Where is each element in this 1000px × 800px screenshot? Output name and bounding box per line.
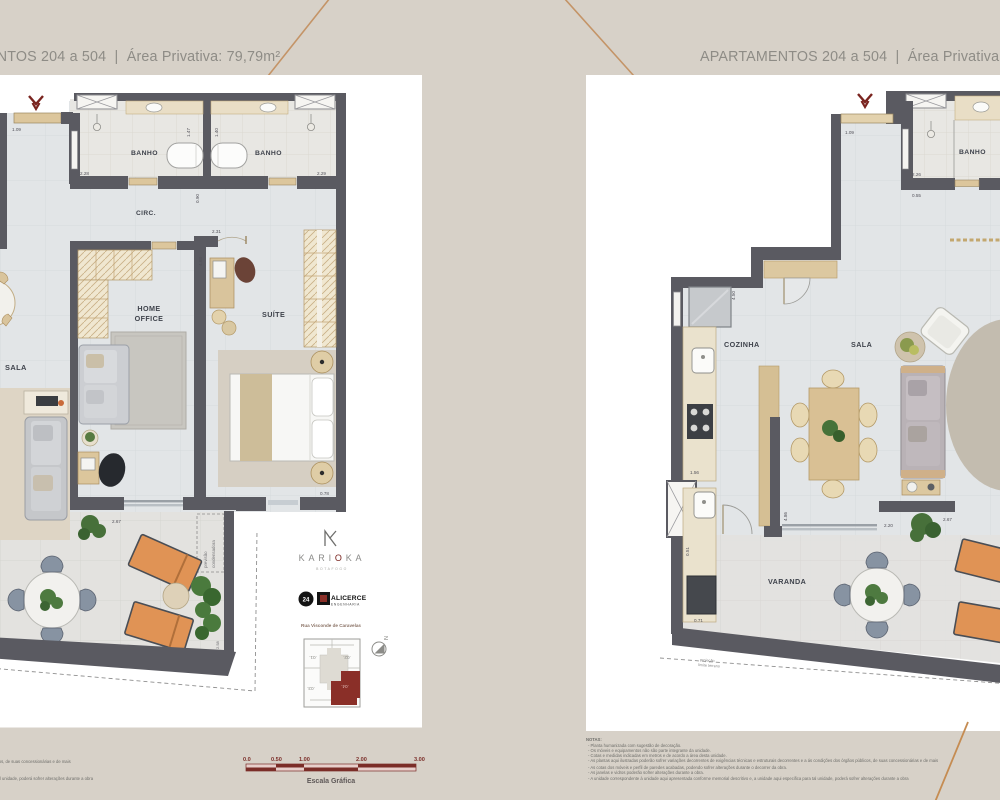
svg-text:2.67: 2.67 (112, 519, 121, 524)
svg-text:CIRC.: CIRC. (136, 210, 156, 217)
svg-text:previsão: previsão (203, 551, 208, 568)
svg-text:condensadora: condensadora (211, 540, 216, 568)
svg-text:N: N (382, 636, 388, 640)
svg-text:4.68: 4.68 (198, 257, 203, 266)
svg-text:aqui especifica para tal unida: aqui especifica para tal unidade, poderá… (0, 776, 94, 781)
svg-text:BANHO: BANHO (959, 149, 986, 156)
svg-text:.03.: .03. (307, 685, 315, 691)
svg-text:SALA: SALA (5, 363, 27, 372)
svg-text:- As janelas e vidros poderão: - As janelas e vidros poderão sofrer alt… (588, 770, 704, 775)
svg-text:VARANDA: VARANDA (768, 577, 806, 586)
svg-text:1.47: 1.47 (186, 128, 191, 137)
svg-text:0.50: 0.50 (271, 757, 282, 763)
svg-text:2.31: 2.31 (212, 229, 221, 234)
svg-text:NOTAS:: NOTAS: (586, 737, 602, 742)
svg-text:.02.: .02. (343, 654, 351, 660)
svg-text:2.29: 2.29 (317, 171, 326, 176)
svg-text:.01.: .01. (309, 654, 317, 660)
svg-text:BOTAFOGO: BOTAFOGO (316, 567, 348, 571)
svg-text:3.00: 3.00 (414, 757, 425, 763)
svg-text:0.0: 0.0 (243, 757, 251, 763)
svg-text:2.28: 2.28 (80, 171, 89, 176)
svg-text:2.00: 2.00 (356, 757, 367, 763)
svg-text:SALA: SALA (851, 340, 872, 349)
svg-text:1.09: 1.09 (12, 127, 21, 132)
svg-text:0.55: 0.55 (912, 193, 921, 198)
svg-text:1.40: 1.40 (214, 128, 219, 137)
svg-text:0.71: 0.71 (694, 618, 703, 623)
svg-text:1.56: 1.56 (690, 470, 699, 475)
svg-text:0.51: 0.51 (685, 547, 690, 556)
svg-text:1.00: 1.00 (299, 757, 310, 763)
svg-text:KARIOKA: KARIOKA (299, 553, 366, 563)
svg-text:- A unidade correspondente à u: - A unidade correspondente à unidade aqu… (588, 776, 909, 781)
svg-text:.04.: .04. (341, 683, 349, 689)
svg-text:2.20: 2.20 (884, 523, 893, 528)
svg-text:2.26: 2.26 (912, 172, 921, 177)
svg-text:4.50: 4.50 (731, 291, 736, 300)
svg-text:- As plantas aqui ilustradas p: - As plantas aqui ilustradas poderão sof… (588, 758, 938, 763)
svg-text:4.86: 4.86 (783, 512, 788, 521)
svg-text:0.78: 0.78 (320, 491, 329, 496)
svg-text:APARTAMENTOS 204 a 504 | Áre: APARTAMENTOS 204 a 504 | Área Privativa:… (0, 48, 280, 65)
svg-text:0.90: 0.90 (195, 194, 200, 203)
svg-text:COZINHA: COZINHA (724, 340, 760, 349)
svg-text:APARTAMENTOS 204 a 504 | Áre: APARTAMENTOS 204 a 504 | Área Privativa:… (700, 48, 1000, 65)
svg-text:ALICERCE: ALICERCE (331, 595, 367, 602)
svg-text:BANHO: BANHO (255, 150, 282, 157)
svg-text:Rua Visconde de Caravelas: Rua Visconde de Caravelas (301, 623, 361, 628)
svg-text:Escala Gráfica: Escala Gráfica (307, 778, 355, 785)
svg-text:24: 24 (303, 598, 310, 604)
svg-text:rias dos órgãos públicos, de s: rias dos órgãos públicos, de suas conces… (0, 759, 71, 764)
svg-text:BANHO: BANHO (131, 150, 158, 157)
svg-text:1.09: 1.09 (845, 130, 854, 135)
svg-text:2.67: 2.67 (943, 517, 952, 522)
svg-text:2.58: 2.58 (215, 640, 220, 649)
svg-text:SUÍTE: SUÍTE (262, 310, 285, 319)
svg-text:HOME: HOME (137, 304, 160, 313)
svg-text:ENGENHARIA: ENGENHARIA (331, 603, 360, 607)
svg-text:OFFICE: OFFICE (135, 314, 164, 323)
